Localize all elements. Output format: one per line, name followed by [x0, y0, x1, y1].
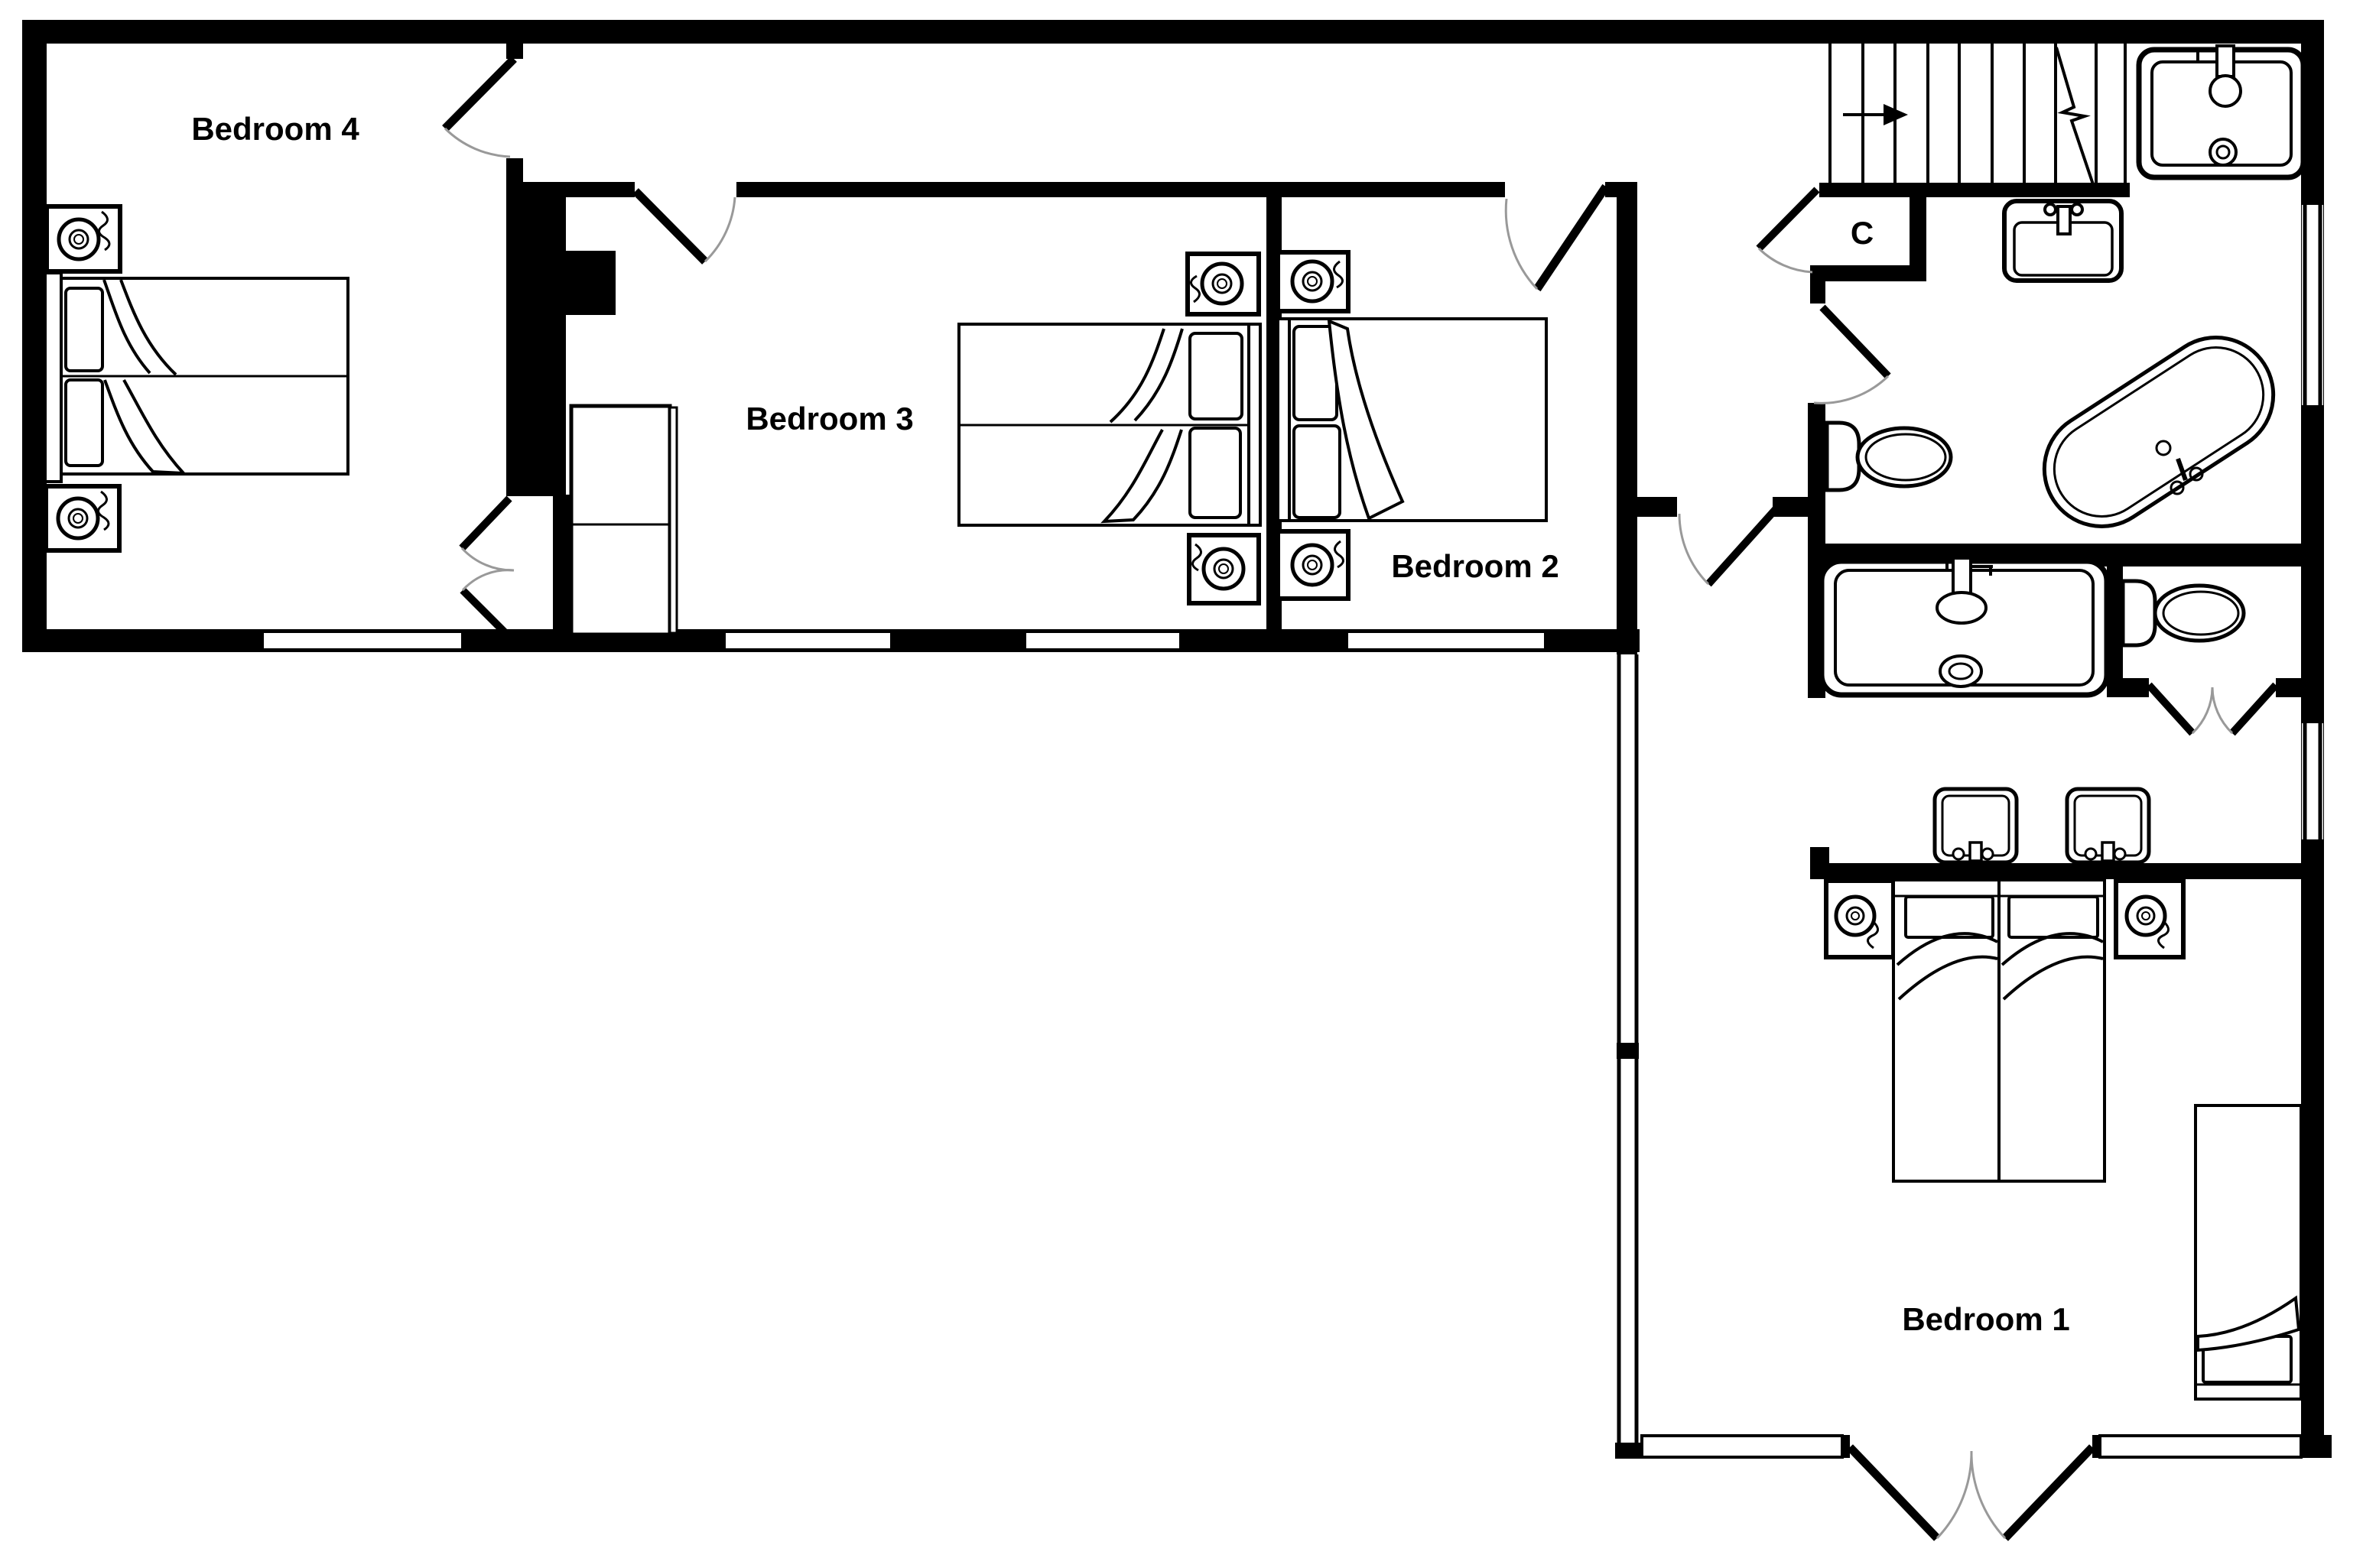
svg-text:C: C — [1851, 215, 1874, 251]
svg-text:Bedroom 1: Bedroom 1 — [1902, 1301, 2069, 1337]
svg-text:Bedroom 3: Bedroom 3 — [746, 401, 913, 437]
svg-text:Bedroom 2: Bedroom 2 — [1391, 548, 1559, 584]
svg-text:Bedroom 4: Bedroom 4 — [191, 111, 359, 147]
